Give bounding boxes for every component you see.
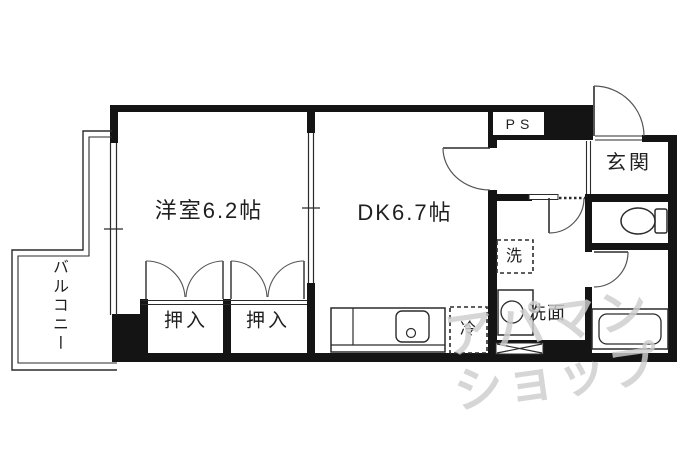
wall-hall-washroom bbox=[488, 194, 532, 201]
washroom-door-arc bbox=[549, 198, 584, 233]
kitchen-sink-icon bbox=[331, 308, 445, 352]
wall-partition-top bbox=[307, 112, 315, 133]
window-left bbox=[104, 143, 123, 315]
closet-left-label: 押入 bbox=[164, 312, 208, 331]
closet-doors bbox=[146, 261, 304, 299]
western-room-label: 洋室6.2帖 bbox=[155, 200, 264, 222]
floorplan-canvas: 洋室6.2帖 DK6.7帖 押入 押入 玄関 PS 洗 洗面 冷 バルコニー ア… bbox=[0, 0, 690, 460]
pipe-space-label: PS bbox=[506, 117, 535, 131]
wall-partition-bottom bbox=[307, 283, 315, 362]
entrance-label: 玄関 bbox=[606, 153, 652, 173]
toilet-icon bbox=[621, 208, 667, 234]
dining-kitchen-label: DK6.7帖 bbox=[357, 202, 452, 224]
sliding-door-partition bbox=[302, 133, 320, 283]
wall-closet-post-left bbox=[140, 299, 148, 359]
entrance-threshold bbox=[595, 136, 642, 140]
wall-closet-post-center bbox=[223, 299, 231, 359]
closet-right-label: 押入 bbox=[246, 312, 290, 331]
wall-top bbox=[112, 105, 497, 112]
wall-toilet-top bbox=[585, 194, 677, 202]
wall-dk-right-upper bbox=[488, 140, 497, 148]
balcony-label: バルコニー bbox=[50, 259, 66, 354]
washing-machine-label: 洗 bbox=[506, 249, 522, 265]
entrance-step-line bbox=[587, 141, 591, 194]
entrance-door-arc bbox=[594, 86, 644, 136]
sliding-door-hall bbox=[529, 195, 585, 200]
dk-door-arc bbox=[443, 148, 490, 190]
wall-toilet-bath-divider bbox=[585, 243, 677, 250]
